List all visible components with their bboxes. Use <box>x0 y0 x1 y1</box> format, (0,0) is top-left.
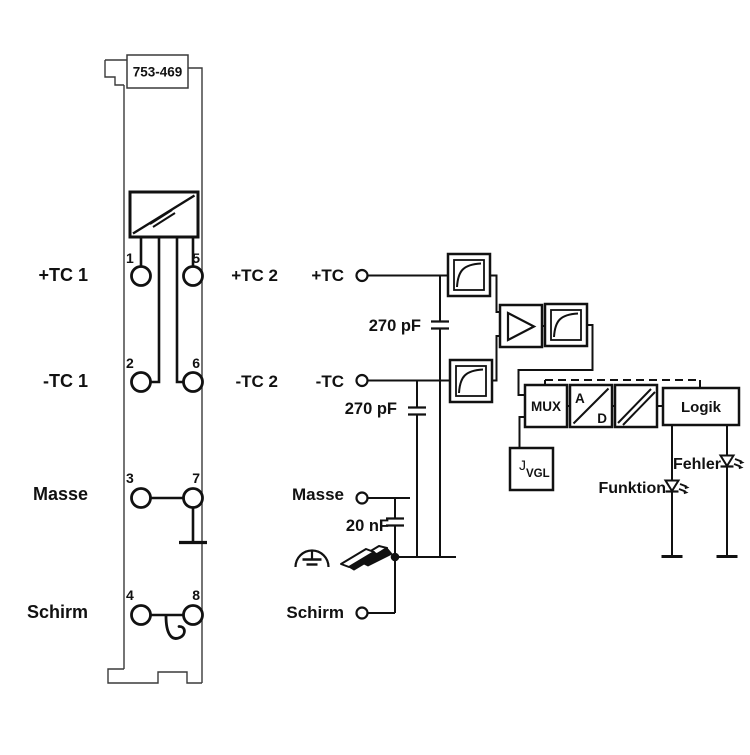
module-labels: +TC 1 -TC 1 Masse Schirm +TC 2 -TC 2 <box>27 265 278 622</box>
lowpass-filter-block-1 <box>448 254 490 296</box>
capacitor-c1-icon <box>431 322 449 329</box>
capacitor-c2-value: 270 pF <box>345 400 397 418</box>
capacitor-c2-icon <box>408 408 426 415</box>
module-outline <box>105 60 202 683</box>
part-number: 753-469 <box>133 65 183 80</box>
mux-label: MUX <box>531 399 561 414</box>
connection-diagram: 753-469 <box>0 0 750 750</box>
fehler-led-icon <box>721 456 745 470</box>
label-tc2-plus: +TC 2 <box>231 266 278 285</box>
logic-block: Logik <box>663 388 739 425</box>
label-schirm-left: Schirm <box>27 602 88 622</box>
terminal-number-1: 1 <box>126 250 134 266</box>
label-tc2-minus: -TC 2 <box>236 372 279 391</box>
terminal-number-4: 4 <box>126 587 134 603</box>
input-terminal-masse <box>357 493 368 504</box>
adc-label-a: A <box>575 391 585 406</box>
module-internal-wiring <box>141 237 193 615</box>
terminal-contact-5 <box>184 267 203 286</box>
terminal-contact-6 <box>184 373 203 392</box>
cjc-label-prefix: J <box>519 457 526 473</box>
label-masse-left: Masse <box>33 484 88 504</box>
terminal-contact-7 <box>184 489 203 508</box>
din-rail-icon <box>341 546 392 570</box>
terminal-number-8: 8 <box>192 587 200 603</box>
capacitor-c3-value: 20 nF <box>346 517 389 535</box>
terminal-contacts <box>132 267 203 625</box>
terminal-contact-3 <box>132 489 151 508</box>
terminal-number-6: 6 <box>192 355 200 371</box>
terminal-number-3: 3 <box>126 470 134 486</box>
terminal-numbers: 1 5 2 6 3 7 4 8 <box>126 250 200 603</box>
circuit-schematic: +TC -TC Masse Schirm <box>286 254 744 622</box>
lowpass-filter-block-2 <box>450 360 492 402</box>
functional-earth-icon <box>296 550 329 568</box>
label-tc1-minus: -TC 1 <box>43 371 88 391</box>
amplifier-block <box>500 305 542 347</box>
input-terminal-tc-plus <box>357 270 368 281</box>
mux-block: MUX <box>525 385 567 427</box>
label-tc-minus: -TC <box>316 372 344 391</box>
terminal-number-2: 2 <box>126 355 134 371</box>
label-schirm: Schirm <box>286 603 344 622</box>
diagram-page: 753-469 <box>0 0 750 750</box>
label-masse: Masse <box>292 485 344 504</box>
wire-schirm <box>368 557 396 613</box>
input-terminal-schirm <box>357 608 368 619</box>
terminal-contact-2 <box>132 373 151 392</box>
isolation-block <box>615 385 657 427</box>
label-tc-plus: +TC <box>311 266 344 285</box>
adc-label-d: D <box>597 411 607 426</box>
terminal-number-7: 7 <box>192 470 200 486</box>
fehler-led-label: Fehler <box>673 456 721 473</box>
funktion-led-icon <box>666 481 690 495</box>
cjc-label-sub: VGL <box>526 468 550 480</box>
terminal-number-5: 5 <box>192 250 200 266</box>
ground-icon <box>179 508 207 543</box>
label-tc1-plus: +TC 1 <box>38 265 88 285</box>
terminal-contact-8 <box>184 606 203 625</box>
capacitor-c1-value: 270 pF <box>369 317 421 335</box>
leg-terminal-6 <box>177 237 183 382</box>
terminal-contact-1 <box>132 267 151 286</box>
module-top-tab <box>105 60 127 85</box>
terminal-contact-4 <box>132 606 151 625</box>
adc-block: A D <box>570 385 612 427</box>
module-foot <box>108 669 202 683</box>
lowpass-filter-block-3 <box>545 304 587 346</box>
electronics-icon <box>130 192 198 237</box>
input-terminal-tc-minus <box>357 375 368 386</box>
leg-terminal-2 <box>151 237 160 382</box>
wire-filter1-to-amp <box>490 276 500 313</box>
shield-hook-icon <box>166 616 184 638</box>
funktion-led-label: Funktion <box>598 480 666 497</box>
cjc-block: J VGL <box>510 448 553 490</box>
logic-label: Logik <box>681 399 722 416</box>
terminal-module: 753-469 <box>105 55 207 683</box>
